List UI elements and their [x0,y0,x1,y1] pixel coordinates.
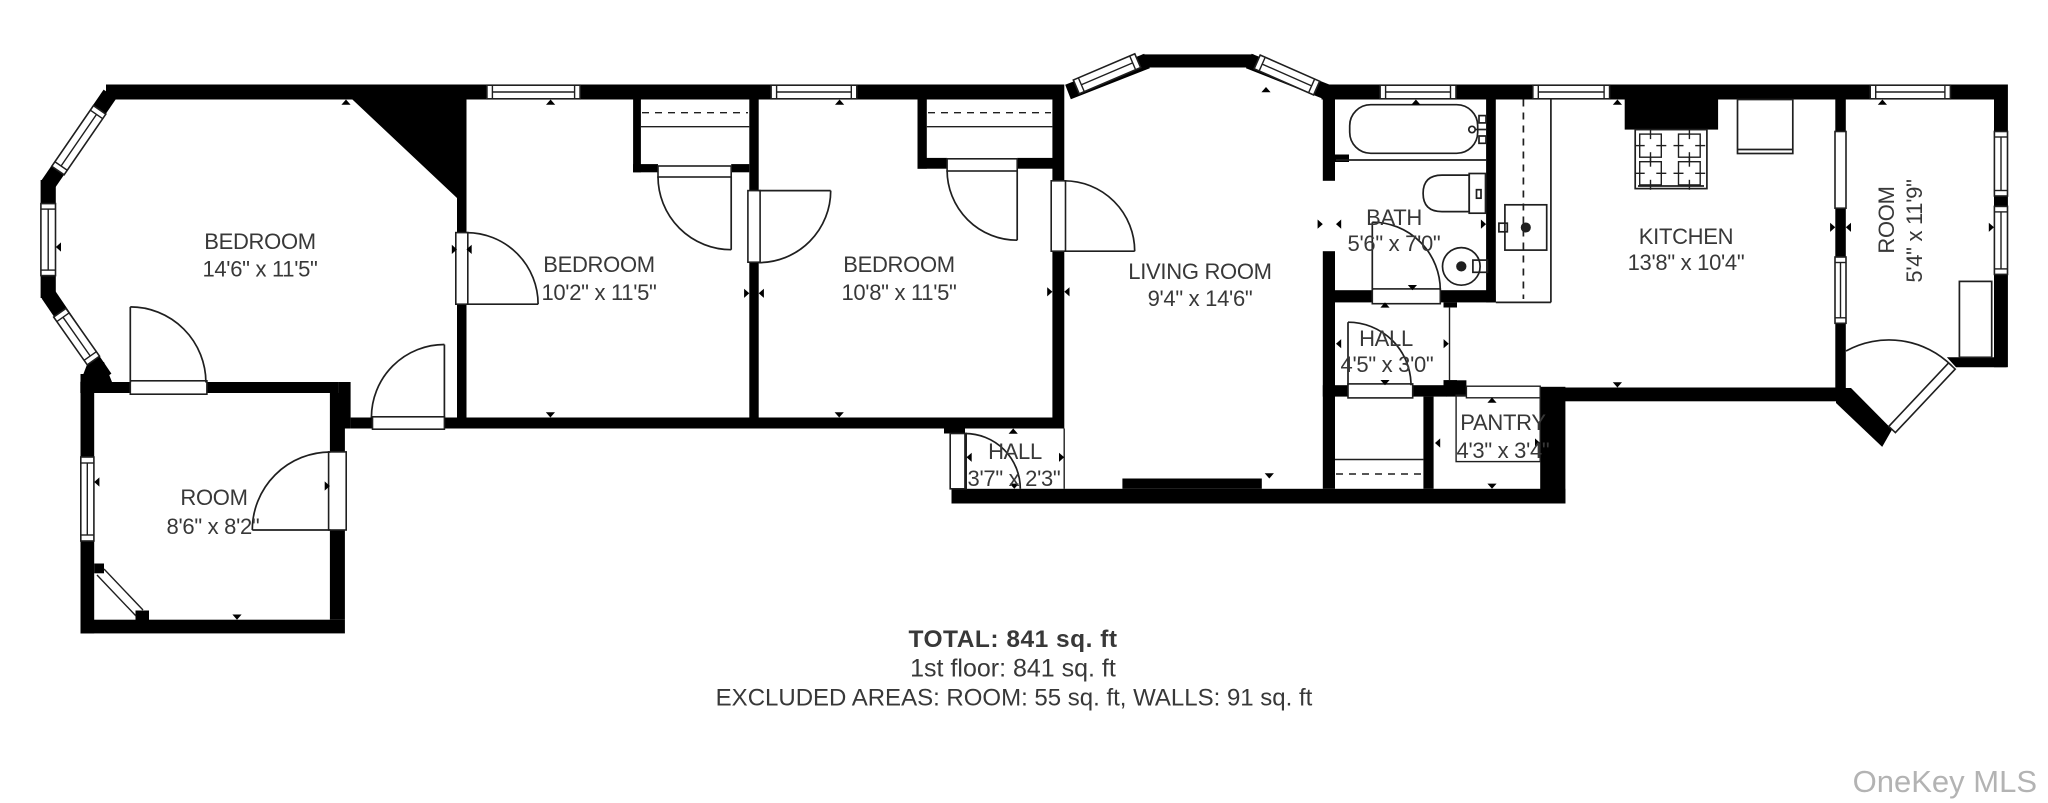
svg-text:HALL: HALL [988,439,1042,464]
svg-text:5'6" x 7'0": 5'6" x 7'0" [1348,231,1441,256]
svg-text:TOTAL: 841 sq. ft: TOTAL: 841 sq. ft [908,626,1117,653]
svg-text:BEDROOM: BEDROOM [543,252,655,277]
svg-text:BEDROOM: BEDROOM [843,252,955,277]
svg-text:9'4" x 14'6": 9'4" x 14'6" [1148,286,1253,311]
svg-text:3'7" x 2'3": 3'7" x 2'3" [968,466,1061,491]
svg-text:1st floor: 841 sq. ft: 1st floor: 841 sq. ft [910,655,1116,683]
svg-text:14'6" x 11'5": 14'6" x 11'5" [202,257,317,282]
svg-text:PANTRY: PANTRY [1460,410,1546,435]
svg-text:LIVING ROOM: LIVING ROOM [1128,259,1271,284]
svg-text:10'2" x 11'5": 10'2" x 11'5" [541,280,656,305]
svg-text:ROOM: ROOM [180,485,247,510]
svg-text:BEDROOM: BEDROOM [204,229,316,254]
svg-text:10'8" x 11'5": 10'8" x 11'5" [841,280,956,305]
svg-text:KITCHEN: KITCHEN [1639,224,1733,249]
svg-text:OneKey MLS: OneKey MLS [1853,764,2037,799]
svg-text:HALL: HALL [1359,326,1413,351]
svg-text:13'8" x 10'4": 13'8" x 10'4" [1628,250,1745,275]
svg-text:BATH: BATH [1366,205,1422,230]
svg-text:EXCLUDED AREAS: ROOM: 55 sq. f: EXCLUDED AREAS: ROOM: 55 sq. ft, WALLS: … [716,685,1313,712]
svg-text:4'3" x 3'4": 4'3" x 3'4" [1457,438,1550,463]
svg-text:8'6" x 8'2": 8'6" x 8'2" [167,514,260,539]
svg-text:4'5" x 3'0": 4'5" x 3'0" [1341,352,1434,377]
svg-text:ROOM: ROOM [1874,186,1899,253]
svg-text:5'4" x 11'9": 5'4" x 11'9" [1902,179,1927,282]
